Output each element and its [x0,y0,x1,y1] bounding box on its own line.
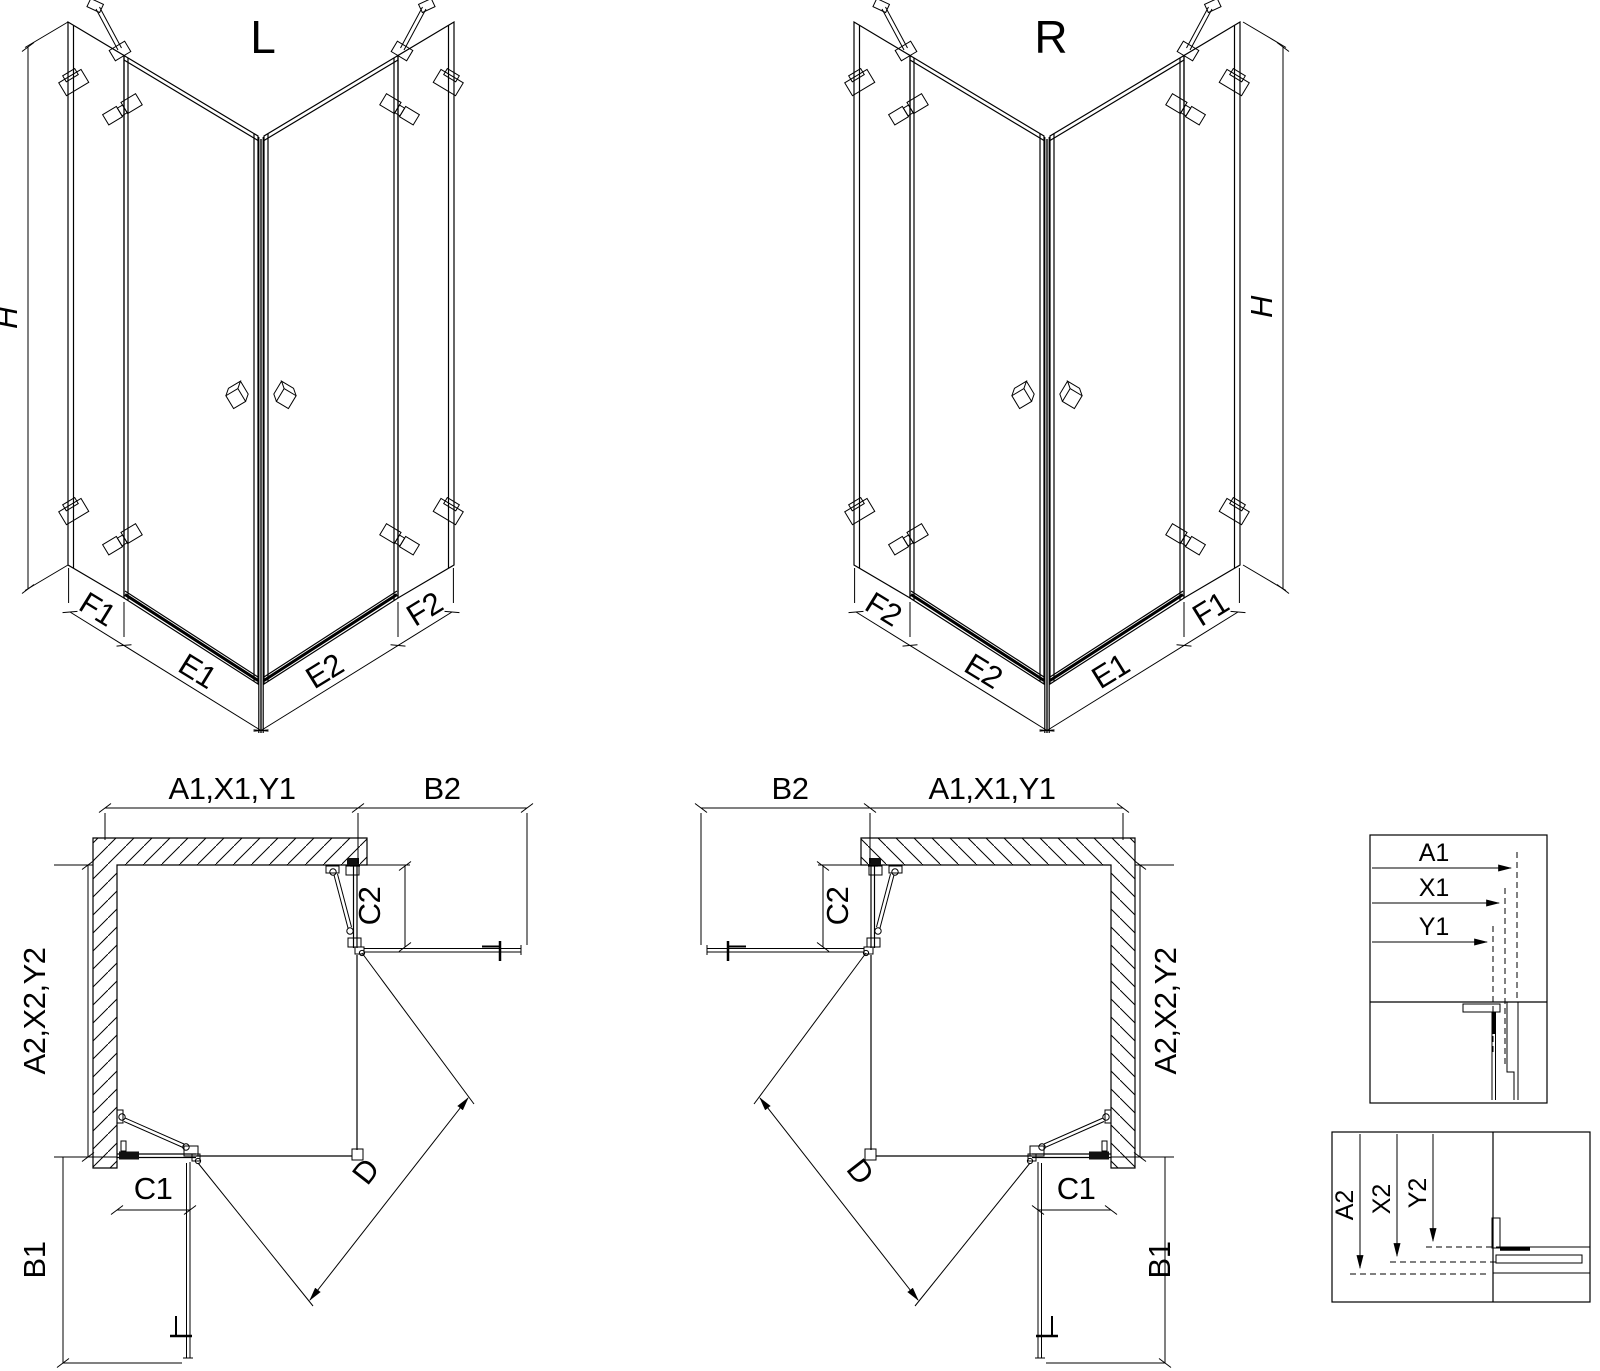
plan-left-depth-label: A2,X2,Y2 [17,948,52,1075]
plan-left-width-label: A1,X1,Y1 [169,771,296,806]
iso-left-title: L [250,11,276,63]
plan-left-b2-label: B2 [424,771,461,806]
plan-right-b1-label: B1 [1142,1242,1177,1279]
plan-left-view [54,804,533,1368]
dim-label-h-right: H [1244,295,1279,318]
plan-left-c1-label: C1 [134,1171,173,1206]
detail-box-depths [1332,1132,1590,1302]
detail-x2-label: X2 [1368,1184,1396,1215]
detail-y2-label: Y2 [1404,1178,1432,1209]
plan-right-width-label: A1,X1,Y1 [929,771,1056,806]
detail-y1-label: Y1 [1419,913,1450,941]
plan-left-b1-label: B1 [17,1242,52,1279]
iso-left-view [22,0,465,737]
plan-left-d-label: D [345,1152,386,1191]
iso-right-title: R [1034,11,1067,63]
drawing-canvas: L H F1 E1 E2 F2 R F2 E2 E1 F1 H A1,X1,Y1… [0,0,1600,1371]
plan-right-d-label: D [840,1152,881,1191]
plan-right-c2-label: C2 [820,887,855,926]
detail-box-widths [1370,835,1547,1103]
plan-right-b2-label: B2 [772,771,809,806]
plan-left-c2-label: C2 [352,887,387,926]
shower-enclosure-technical-drawing: L H F1 E1 E2 F2 R F2 E2 E1 F1 H A1,X1,Y1… [0,0,1600,1371]
plan-right-view [695,804,1174,1368]
labels: L H F1 E1 E2 F2 R F2 E2 E1 F1 H A1,X1,Y1… [0,11,1449,1278]
detail-x1-label: X1 [1419,874,1450,902]
dim-label-h-left: H [0,306,24,329]
detail-a1-label: A1 [1419,839,1450,867]
plan-right-c1-label: C1 [1057,1171,1096,1206]
iso-right-view [843,0,1289,737]
plan-right-depth-label: A2,X2,Y2 [1148,948,1183,1075]
detail-a2-label: A2 [1331,1190,1359,1221]
